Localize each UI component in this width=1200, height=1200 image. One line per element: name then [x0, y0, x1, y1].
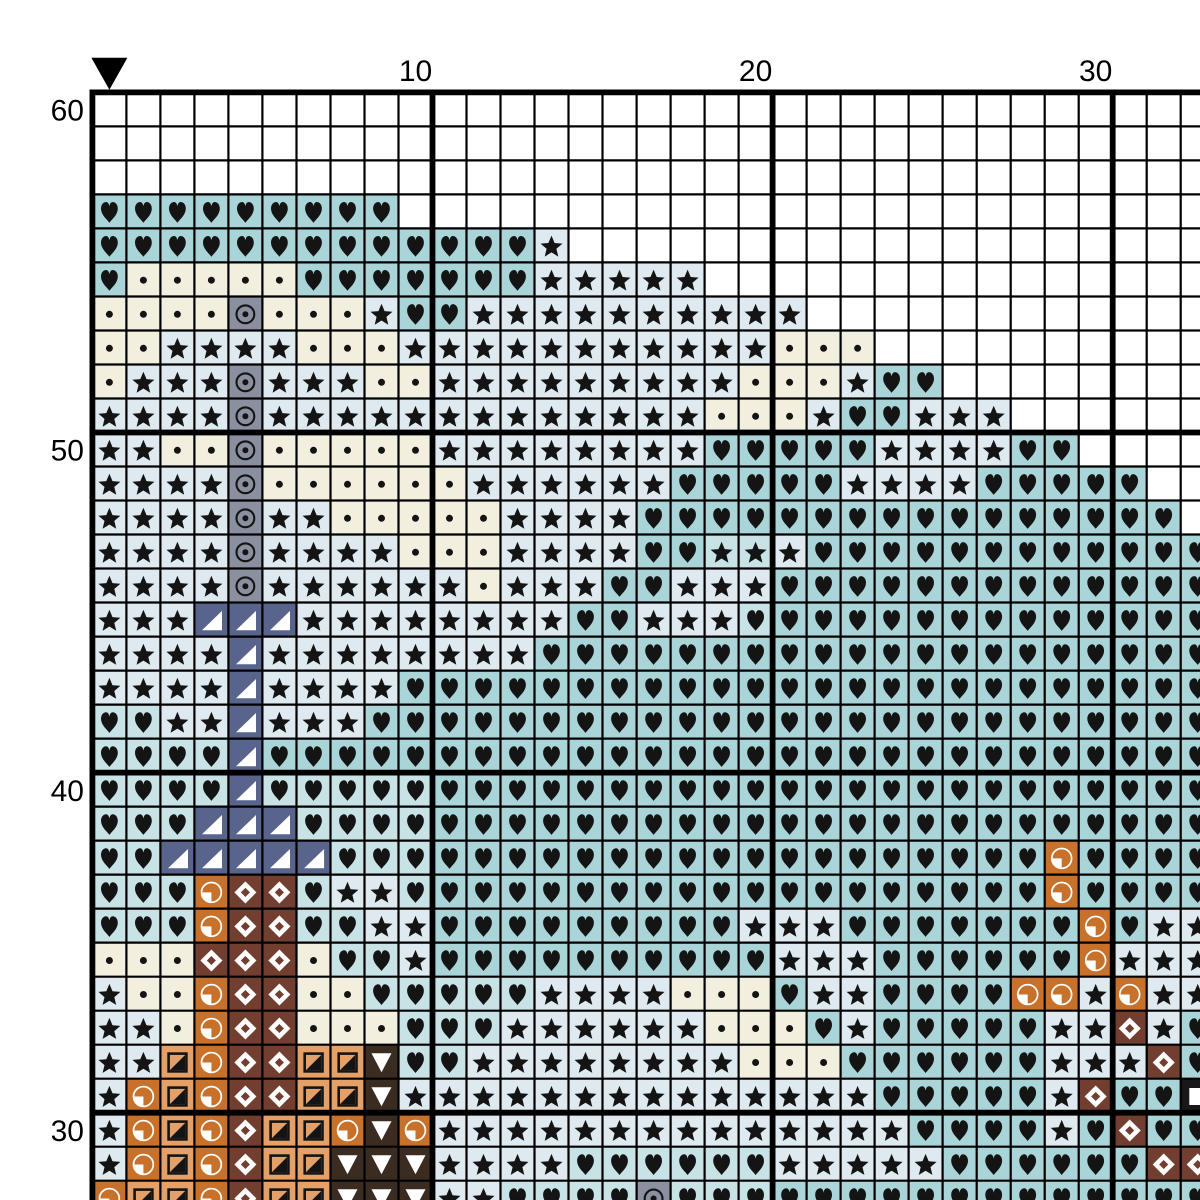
- svg-text:10: 10: [399, 55, 432, 88]
- svg-text:20: 20: [739, 55, 772, 88]
- svg-text:30: 30: [51, 1115, 84, 1148]
- svg-text:60: 60: [51, 95, 84, 128]
- svg-text:50: 50: [51, 435, 84, 468]
- svg-text:40: 40: [51, 775, 84, 808]
- svg-text:30: 30: [1079, 55, 1112, 88]
